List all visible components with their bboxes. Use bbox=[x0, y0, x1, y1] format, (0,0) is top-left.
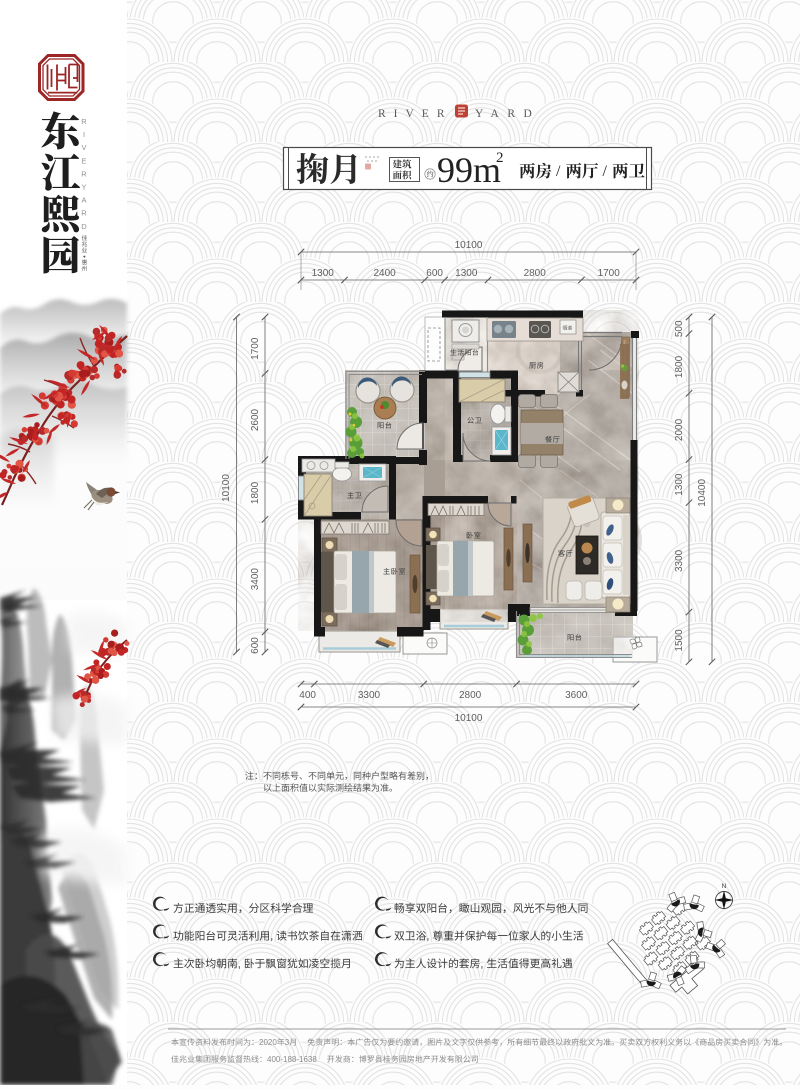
svg-text:2020: 2020 bbox=[259, 1038, 277, 1047]
svg-text:99m: 99m bbox=[437, 150, 501, 190]
svg-text:,: , bbox=[238, 958, 241, 970]
svg-text:3: 3 bbox=[285, 1038, 290, 1047]
svg-text:Y: Y bbox=[81, 183, 86, 192]
svg-text:2600: 2600 bbox=[250, 408, 261, 431]
svg-text:R: R bbox=[81, 117, 87, 126]
svg-text:A: A bbox=[81, 196, 86, 205]
svg-text:600: 600 bbox=[250, 637, 261, 654]
svg-text:1800: 1800 bbox=[674, 355, 685, 378]
svg-text:R: R bbox=[81, 169, 87, 178]
svg-text:2400: 2400 bbox=[373, 268, 396, 279]
svg-text:3300: 3300 bbox=[674, 549, 685, 572]
svg-text:2000: 2000 bbox=[674, 418, 685, 441]
svg-text:D: D bbox=[81, 222, 87, 231]
svg-text:2800: 2800 bbox=[524, 268, 547, 279]
svg-text:2800: 2800 bbox=[459, 690, 482, 701]
svg-text:I: I bbox=[83, 130, 85, 139]
svg-text:1800: 1800 bbox=[250, 481, 261, 504]
svg-text:,: , bbox=[270, 931, 273, 943]
svg-text:,: , bbox=[426, 931, 429, 943]
svg-text:YARD: YARD bbox=[475, 108, 540, 120]
svg-text:R: R bbox=[81, 209, 87, 218]
svg-text:,: , bbox=[480, 958, 483, 970]
svg-text:V: V bbox=[81, 143, 86, 152]
svg-text:N: N bbox=[722, 883, 727, 890]
svg-text:1500: 1500 bbox=[674, 629, 685, 652]
svg-text:RIVER: RIVER bbox=[378, 108, 453, 120]
svg-text:500: 500 bbox=[674, 320, 685, 337]
svg-text:3400: 3400 bbox=[250, 568, 261, 591]
svg-text:2: 2 bbox=[496, 150, 504, 166]
svg-text:10100: 10100 bbox=[455, 240, 483, 251]
svg-text:1700: 1700 bbox=[250, 337, 261, 360]
svg-text:1300: 1300 bbox=[674, 473, 685, 496]
svg-text:E: E bbox=[81, 156, 86, 165]
svg-text:3300: 3300 bbox=[358, 690, 381, 701]
svg-text:600: 600 bbox=[426, 268, 443, 279]
svg-text:/: / bbox=[603, 163, 608, 180]
svg-text:400: 400 bbox=[299, 690, 316, 701]
svg-text:3600: 3600 bbox=[565, 690, 588, 701]
svg-text:10100: 10100 bbox=[455, 713, 483, 724]
svg-text:400-188-1638: 400-188-1638 bbox=[267, 1055, 317, 1064]
svg-text:1700: 1700 bbox=[598, 268, 621, 279]
svg-text:10400: 10400 bbox=[697, 479, 708, 507]
svg-text:/: / bbox=[556, 163, 561, 180]
svg-text:1300: 1300 bbox=[455, 268, 478, 279]
svg-text:10100: 10100 bbox=[221, 474, 232, 502]
svg-text:1300: 1300 bbox=[312, 268, 335, 279]
